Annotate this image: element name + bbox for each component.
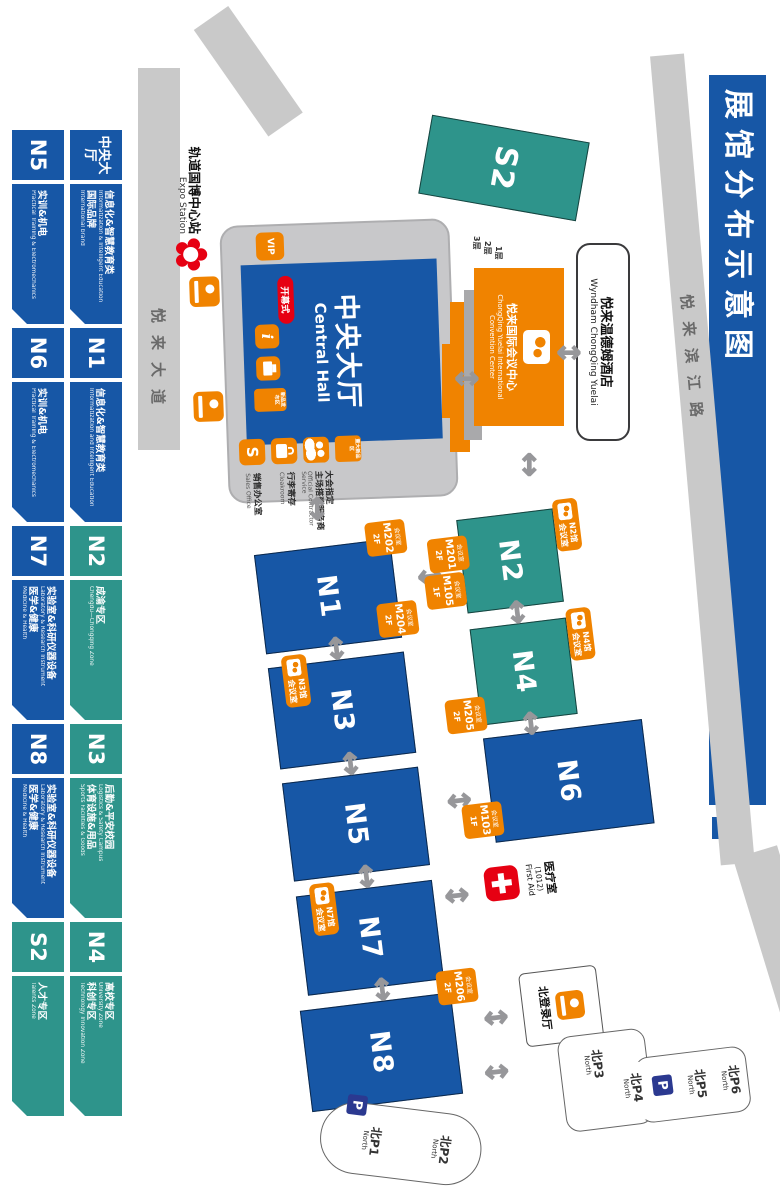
hall-n8-label: N8 xyxy=(363,1029,399,1076)
legend-header: N1 xyxy=(70,328,122,378)
parking-label-p1: 北P1North xyxy=(358,1117,383,1165)
cloakroom-bag-icon xyxy=(271,438,298,465)
parking-label-p6: 北P6North xyxy=(718,1056,743,1104)
double-arrow-icon: ↔ xyxy=(514,452,544,477)
sales-office-icon: S xyxy=(239,439,266,466)
registration-icon xyxy=(555,989,586,1020)
hall-s2: S2 xyxy=(418,115,589,222)
contractor-people-icon xyxy=(303,436,330,463)
parking-lot-north-lower: 北P2North 北P1North P xyxy=(316,1098,486,1189)
legend-header: 中央大厅 xyxy=(70,130,122,180)
hall-n5-label: N5 xyxy=(338,801,374,848)
hall-n4: N4 xyxy=(470,618,578,726)
legend-header: S2 xyxy=(12,922,64,972)
double-arrow-icon: ↕ xyxy=(450,366,480,391)
central-hall: 中央大厅 Central Hall xyxy=(241,259,443,446)
opening-ceremony-badge: 开幕式 xyxy=(277,276,295,325)
convention-meeting-icon xyxy=(523,330,550,364)
vip-badge: VIP xyxy=(255,232,284,261)
first-aid-label: 医疗室 (1012) First Aid xyxy=(520,839,561,918)
floor-label-3: 3层 xyxy=(471,236,482,250)
double-arrow-icon: ↕ xyxy=(552,340,582,365)
hall-n2-label: N2 xyxy=(492,537,528,584)
meeting-room-m105: 会议室M1051F xyxy=(424,572,468,611)
legend-header: N2 xyxy=(70,526,122,576)
legend-header: N8 xyxy=(12,724,64,774)
hall-field: N2 N4 N6 N1 N3 N5 N7 N8 N2馆会议室 xyxy=(199,480,771,1190)
n3-meeting-badge: N3馆会议室 xyxy=(280,654,311,709)
hall-n2: N2 xyxy=(456,508,564,613)
major-release-badge: 重大新品区 xyxy=(335,435,362,462)
legend-card-n1: N1 信息化&智慧教育类Informatization and Intellig… xyxy=(70,328,122,522)
parking-icon: P xyxy=(346,1094,368,1116)
legend-card-n5: N5 实训&机电Practical Training & Electromech… xyxy=(12,130,64,324)
road-avenue-label: 悦来大道 xyxy=(148,308,169,416)
meeting-icon xyxy=(571,611,587,630)
n4-meeting-badge: N4馆会议室 xyxy=(565,607,596,662)
parking-label-p5: 北P5North xyxy=(684,1060,709,1108)
double-arrow-icon: ↔ xyxy=(334,749,367,778)
double-arrow-icon: ↔ xyxy=(319,634,352,663)
legend-card-n8: N8 实验室&科研仪器设备Laboratory & Research Instr… xyxy=(12,724,64,918)
floor-label-1: 1层 xyxy=(493,246,504,260)
double-arrow-icon: ↔ xyxy=(350,862,383,891)
legend-header: N7 xyxy=(12,526,64,576)
meeting-icon xyxy=(286,658,302,677)
central-hall-en: Central Hall xyxy=(311,302,332,402)
floor-label-2: 2层 xyxy=(482,241,493,255)
legend-card-central-hall: 中央大厅 信息化&智慧教育类Informatization & Intellig… xyxy=(70,130,122,324)
hall-n4-label: N4 xyxy=(506,648,542,695)
meeting-room-m201: 会议室M2012F xyxy=(426,535,470,574)
double-arrow-icon: ↕ xyxy=(439,881,472,910)
double-arrow-icon: ↔ xyxy=(365,975,398,1004)
hall-n7-label: N7 xyxy=(352,914,388,961)
hall-n3-label: N3 xyxy=(324,687,360,734)
legend-card-n3: N3 后勤&平安校园Logistics & Safety Campus 体育设施… xyxy=(70,724,122,918)
hall-n6: N6 xyxy=(483,719,655,843)
meeting-room-m205: 会议室M2052F xyxy=(444,696,488,735)
n7-meeting-badge: N7馆会议室 xyxy=(308,882,339,937)
first-aid-icon xyxy=(483,864,521,902)
parking-label-p2: 北P2North xyxy=(428,1125,453,1173)
meeting-icon xyxy=(314,887,330,906)
legend-header: N5 xyxy=(12,130,64,180)
legend-card-n6: N6 实训&机电Practical Training & Electromech… xyxy=(12,328,64,522)
release-area-badge: 新品发布区 xyxy=(254,388,287,412)
metro-logo-icon: ✿ xyxy=(168,236,212,273)
registration-entrance-icon xyxy=(189,276,220,307)
meeting-icon xyxy=(557,502,573,521)
hall-n6-label: N6 xyxy=(551,757,587,804)
central-hall-complex: 中央大厅 Central Hall VIP 开幕式 i 新品发布区 重大新品区 … xyxy=(219,218,459,504)
hall-n1-label: N1 xyxy=(310,573,346,620)
road-riverside-label: 悦来滨江路 xyxy=(676,293,709,429)
hall-n8: N8 xyxy=(300,992,463,1112)
service-machine-icon xyxy=(256,356,281,381)
n2-meeting-badge: N2馆会议室 xyxy=(551,497,582,552)
central-hall-cn: 中央大厅 xyxy=(329,293,372,410)
double-arrow-icon: ↕ xyxy=(478,1004,511,1033)
legend-card-n4: N4 高校专区University Zone 科创专区Technology In… xyxy=(70,922,122,1116)
legend-header: N4 xyxy=(70,922,122,972)
parking-label-p3: 北P3North xyxy=(581,1040,606,1088)
meeting-room-m103: 会议室M1031F xyxy=(461,801,505,840)
parking-icon: P xyxy=(651,1074,673,1096)
legend-card-n2: N2 成渝专区Chengdu—Chongqing Zone xyxy=(70,526,122,720)
exhibition-map: 展馆分布示意图 悦来滨江路 悦来大道 轨道国博中心站 Expo Station … xyxy=(0,0,780,1190)
info-icon: i xyxy=(255,324,280,349)
meeting-room-m204: 会议室M2042F xyxy=(376,600,420,639)
double-arrow-icon: ↕ xyxy=(478,1058,511,1087)
parking-label-p4: 北P4North xyxy=(620,1064,645,1112)
hall-s2-label: S2 xyxy=(483,143,525,193)
double-arrow-icon: ↔ xyxy=(500,598,533,627)
legend-header: N6 xyxy=(12,328,64,378)
double-arrow-icon: ↔ xyxy=(302,496,332,521)
road-avenue-curve xyxy=(194,6,303,137)
expo-station-label: 轨道国博中心站 Expo Station xyxy=(176,124,202,234)
legend-card-n7: N7 实验室&科研仪器设备Laboratory & Research Instr… xyxy=(12,526,64,720)
registration-entrance-icon xyxy=(193,391,224,422)
legend-card-s2: S2 人才专区Talents Zone xyxy=(12,922,64,1116)
legend-header: N3 xyxy=(70,724,122,774)
meeting-room-m202: 会议室M2022F xyxy=(364,519,408,558)
meeting-room-m206: 会议室M2062F xyxy=(435,967,479,1006)
double-arrow-icon: ↔ xyxy=(514,709,547,738)
